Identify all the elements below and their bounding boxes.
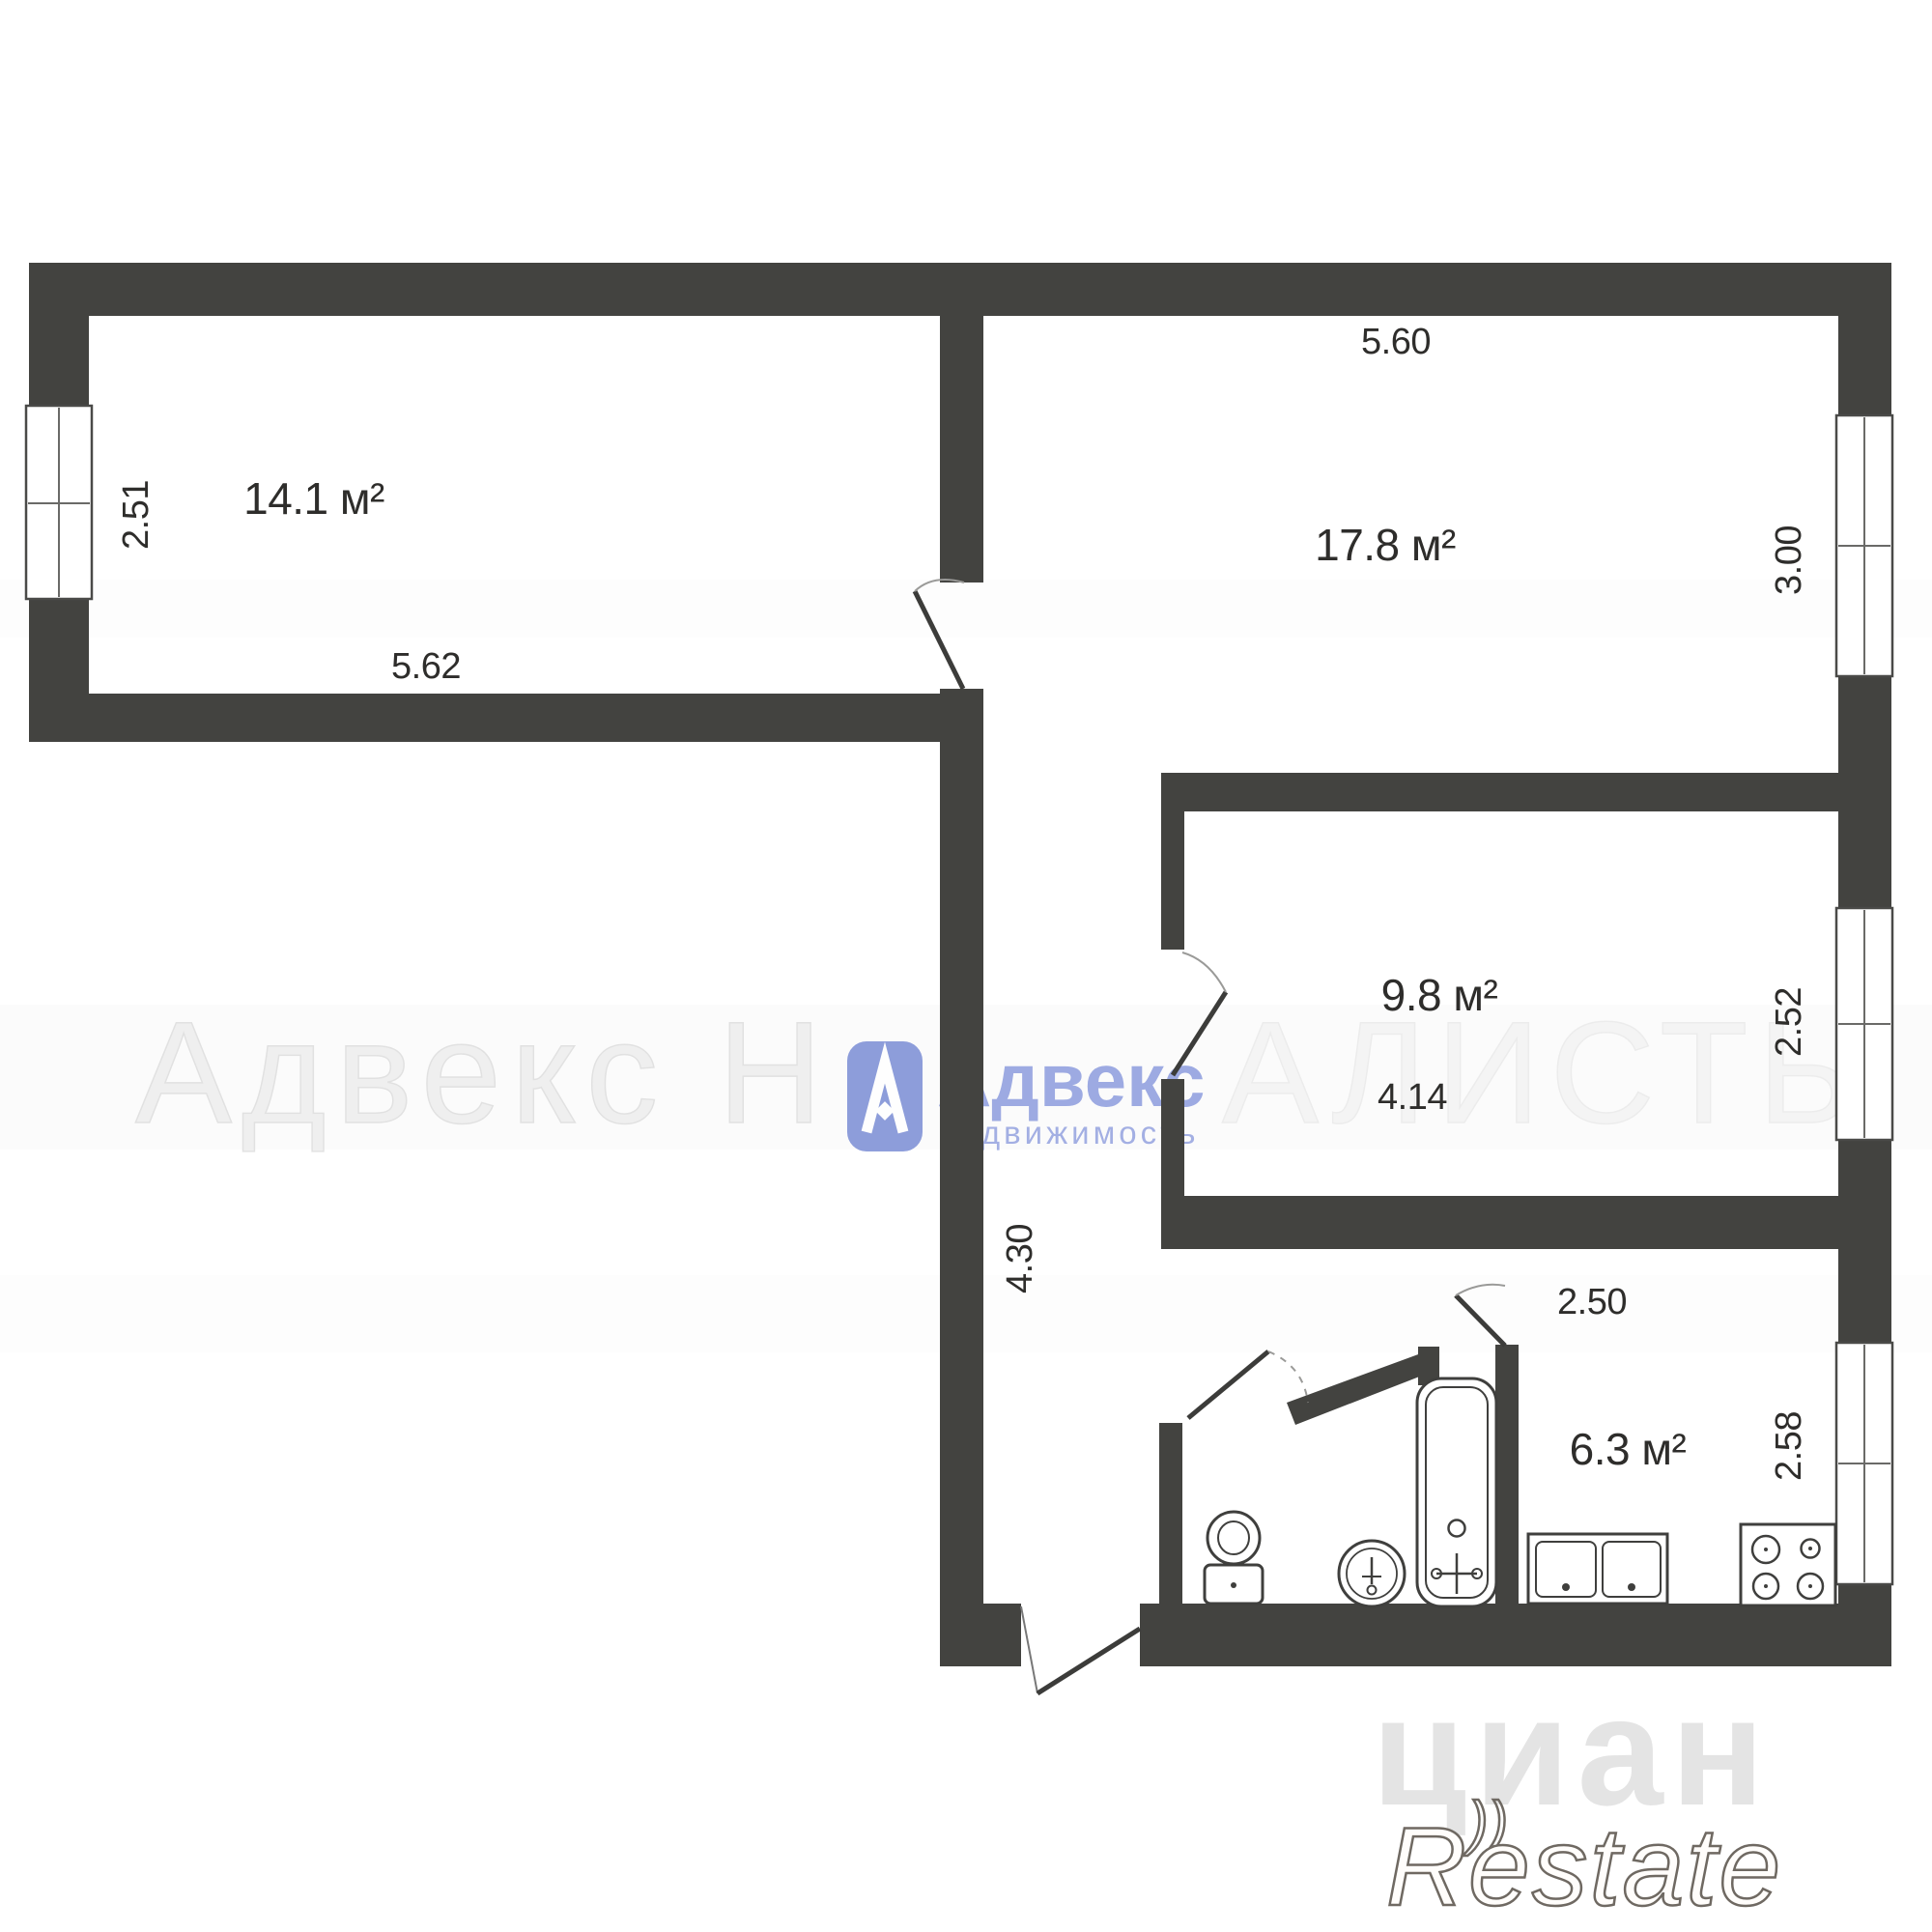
wall-bottom-left: [940, 1604, 1021, 1666]
restate-text: Restate: [1386, 1805, 1782, 1929]
wall-divider-top: [940, 316, 983, 582]
entrance-swing: [1021, 1606, 1140, 1693]
corridor-length-label: 4.30: [1000, 1224, 1040, 1293]
wall-bottom-right: [1140, 1604, 1891, 1666]
stove-icon: [1741, 1524, 1835, 1605]
floor-plan: Адвекс Н АЛИСТЫ Адвекс недвижимость: [0, 0, 1932, 1932]
wall-room3-left-b: [1161, 1079, 1184, 1196]
room1-width-label: 5.62: [391, 646, 461, 687]
room2-side-label: 3.00: [1769, 526, 1809, 595]
wall-room3-left-a: [1161, 811, 1184, 950]
wall-right-3: [1838, 1140, 1891, 1343]
wall-between-17-and-9: [1161, 773, 1838, 811]
kitchen-side-label: 2.58: [1769, 1411, 1809, 1481]
door-entrance: [1021, 1606, 1140, 1693]
wall-room3-bottom: [1161, 1196, 1838, 1249]
restate-logo: )) Restate: [1386, 1790, 1782, 1929]
room2-area-label: 17.8 м²: [1315, 520, 1456, 570]
room3-side-label: 2.52: [1769, 987, 1809, 1057]
wall-corridor-left: [940, 689, 983, 1604]
room3-area-label: 9.8 м²: [1381, 970, 1498, 1020]
wall-right-2: [1838, 676, 1891, 908]
window-room2-right: [1836, 415, 1892, 676]
kitchen-width-label: 2.50: [1557, 1282, 1627, 1322]
wall-bath-left: [1159, 1423, 1182, 1604]
window-room3-right: [1836, 908, 1892, 1140]
bathtub-icon: [1417, 1378, 1496, 1606]
wall-room1-bottom: [29, 694, 983, 742]
kitchen-sink-icon: [1528, 1534, 1667, 1604]
wall-top: [29, 263, 1891, 316]
wall-left-upper: [29, 263, 89, 408]
room1-side-label: 2.51: [116, 480, 156, 550]
toilet-icon: [1205, 1512, 1263, 1604]
wall-right-1: [1838, 263, 1891, 415]
wall-kitchen-left: [1495, 1345, 1519, 1604]
bathroom-sink-icon: [1339, 1541, 1405, 1606]
room1-area-label: 14.1 м²: [243, 473, 384, 524]
room3-width-label: 4.14: [1378, 1077, 1447, 1118]
agency-logo-icon: [847, 1041, 923, 1151]
floor-plan-page: Адвекс Н АЛИСТЫ Адвекс недвижимость: [0, 0, 1932, 1932]
band: [0, 580, 1932, 638]
window-kitchen-right: [1836, 1343, 1892, 1584]
window-room1-left: [26, 406, 92, 599]
watermark-text-left: Адвекс Н: [135, 991, 832, 1153]
room2-top-label: 5.60: [1361, 322, 1431, 362]
kitchen-area-label: 6.3 м²: [1570, 1424, 1687, 1474]
